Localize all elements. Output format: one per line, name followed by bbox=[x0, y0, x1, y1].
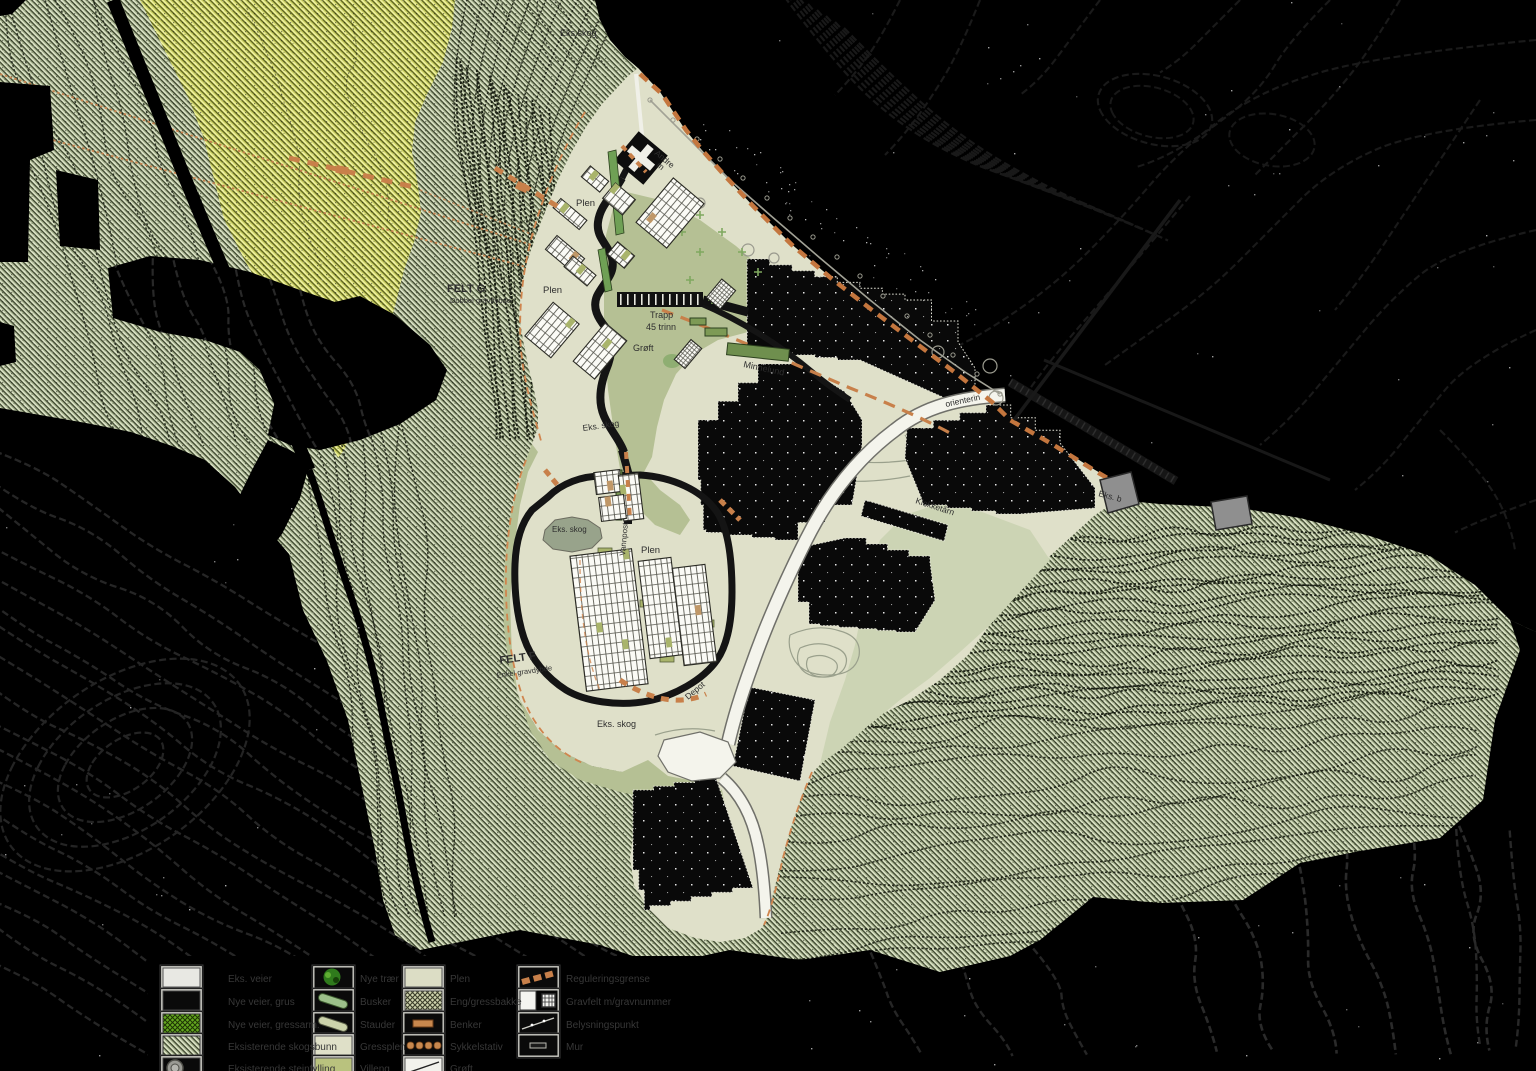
svg-text:FELT G: FELT G bbox=[447, 283, 485, 295]
svg-text:Nye veier, gressarm.: Nye veier, gressarm. bbox=[228, 1020, 320, 1031]
svg-text:Eks. skog: Eks. skog bbox=[597, 719, 636, 729]
svg-text:Dobbel gravdybde: Dobbel gravdybde bbox=[450, 296, 511, 305]
svg-text:Trapp: Trapp bbox=[650, 310, 673, 320]
svg-text:Grøft: Grøft bbox=[633, 343, 654, 353]
svg-text:Plen: Plen bbox=[543, 285, 562, 296]
svg-text:Eng/gressbakke: Eng/gressbakke bbox=[450, 997, 522, 1008]
svg-text:Plen: Plen bbox=[576, 198, 595, 209]
svg-text:Plen: Plen bbox=[450, 974, 470, 985]
svg-text:45 trinn: 45 trinn bbox=[646, 322, 676, 332]
svg-text:Grøft: Grøft bbox=[450, 1064, 473, 1071]
svg-text:Busker: Busker bbox=[360, 997, 392, 1008]
svg-text:Belysningspunkt: Belysningspunkt bbox=[566, 1020, 639, 1031]
svg-text:Benker: Benker bbox=[450, 1020, 482, 1031]
svg-text:Eks. skog: Eks. skog bbox=[552, 525, 587, 534]
svg-text:Sykkelstativ: Sykkelstativ bbox=[450, 1042, 503, 1053]
svg-text:Eks.skog: Eks.skog bbox=[560, 28, 597, 38]
svg-text:Villeng: Villeng bbox=[360, 1064, 390, 1071]
svg-text:Plen: Plen bbox=[641, 545, 660, 556]
svg-text:Eksisterende skogsbunn: Eksisterende skogsbunn bbox=[228, 1042, 337, 1053]
svg-text:Stauder: Stauder bbox=[360, 1020, 396, 1031]
svg-text:Eks. veier: Eks. veier bbox=[228, 974, 273, 985]
svg-text:Gressplen: Gressplen bbox=[360, 1042, 406, 1053]
svg-text:Nye veier, grus: Nye veier, grus bbox=[228, 997, 295, 1008]
svg-text:Gravfelt m/gravnummer: Gravfelt m/gravnummer bbox=[566, 997, 672, 1008]
svg-text:Eksisterende steinfylling: Eksisterende steinfylling bbox=[228, 1064, 335, 1071]
svg-text:Reguleringsgrense: Reguleringsgrense bbox=[566, 974, 650, 985]
svg-text:Nye trær: Nye trær bbox=[360, 974, 400, 985]
svg-text:Mur: Mur bbox=[566, 1042, 584, 1053]
